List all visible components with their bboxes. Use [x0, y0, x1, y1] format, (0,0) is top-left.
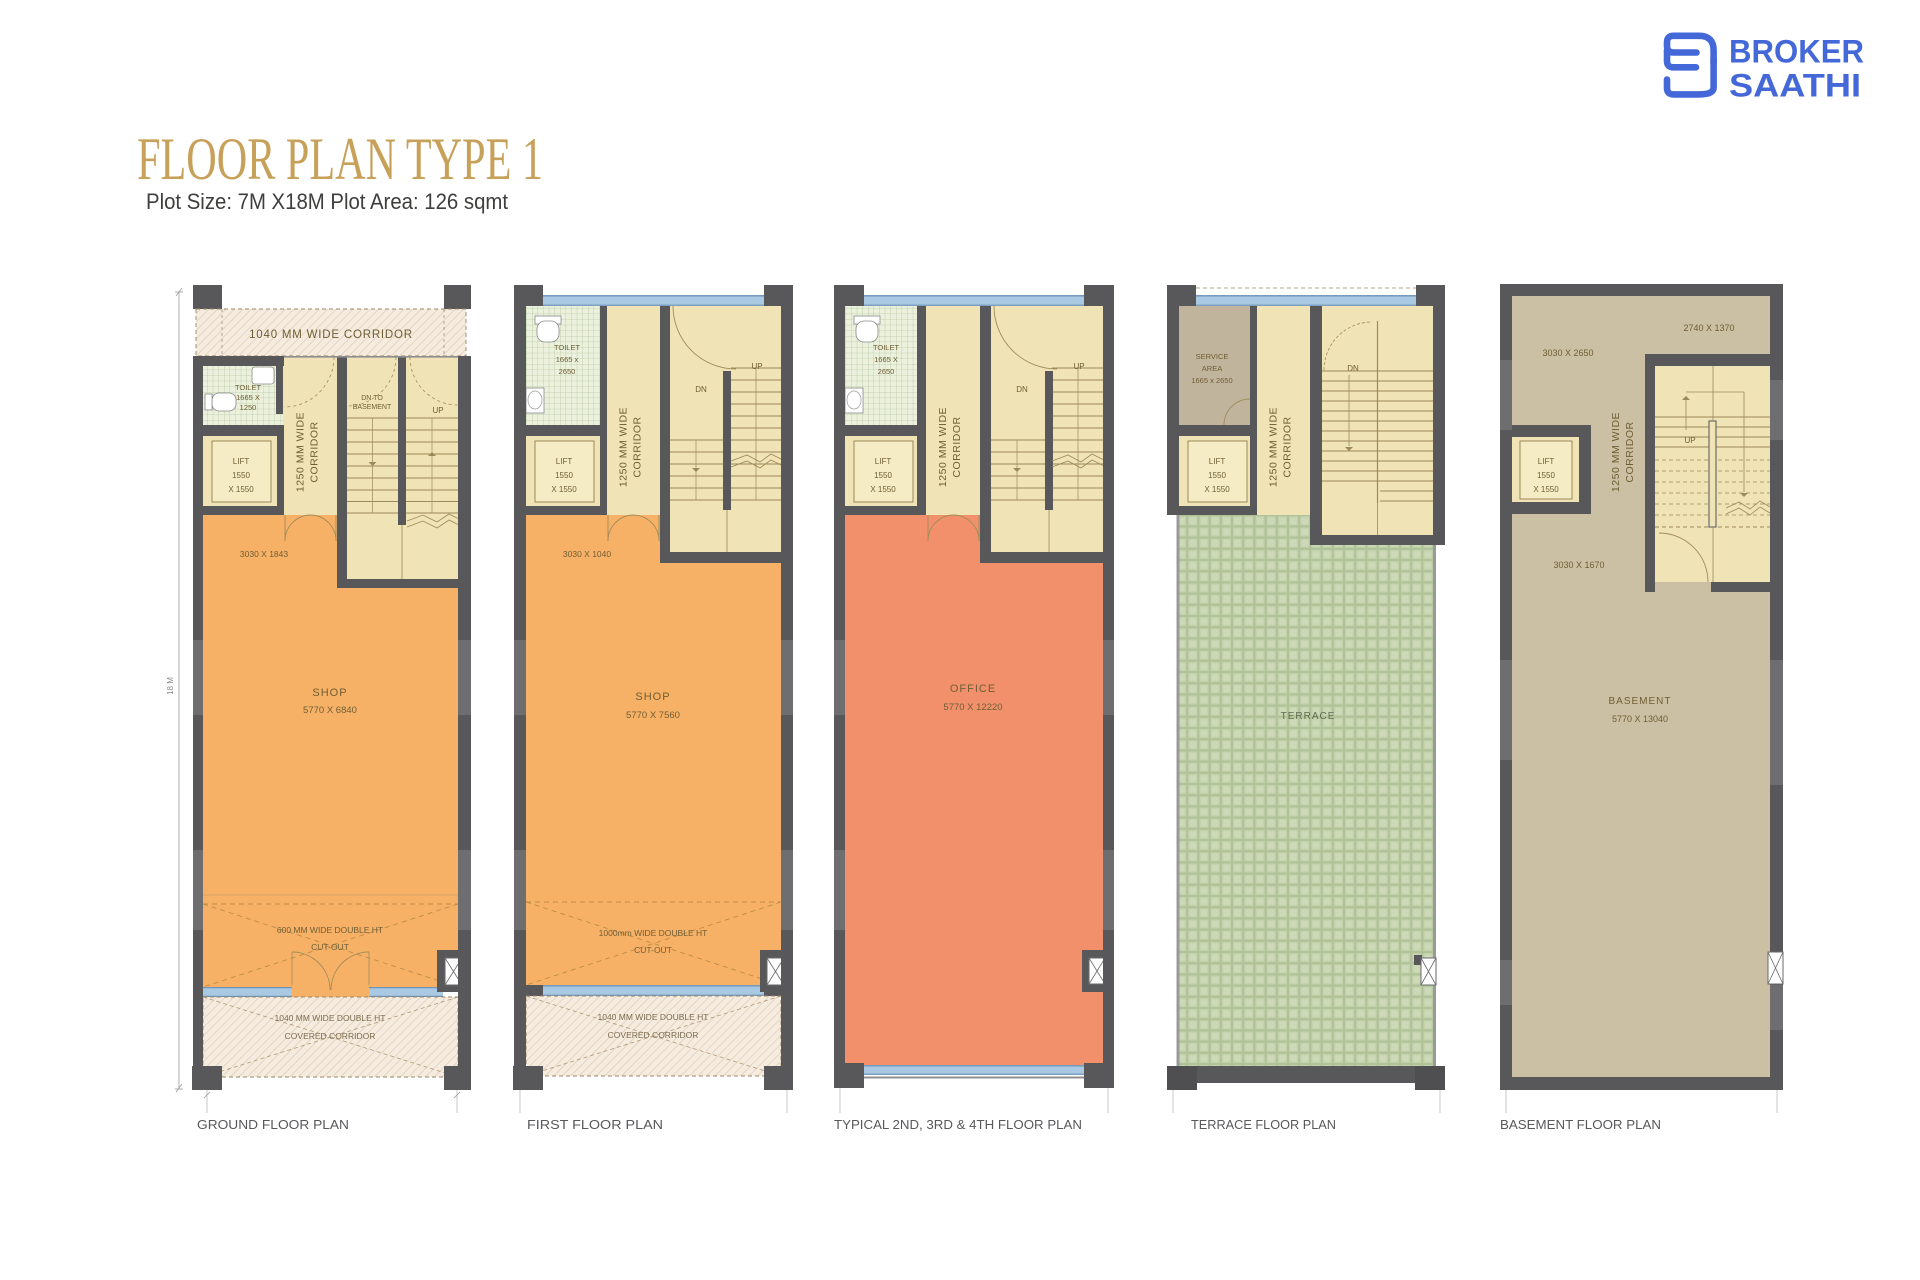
svg-text:SHOP: SHOP	[635, 691, 670, 703]
svg-text:600 MM WIDE DOUBLE HT: 600 MM WIDE DOUBLE HT	[277, 925, 383, 935]
svg-text:FIRST FLOOR PLAN: FIRST FLOOR PLAN	[527, 1117, 663, 1132]
svg-text:CORRIDOR: CORRIDOR	[1282, 416, 1294, 477]
svg-text:LIFT: LIFT	[1209, 457, 1226, 466]
svg-text:X 1550: X 1550	[870, 485, 896, 494]
svg-text:LIFT: LIFT	[556, 457, 573, 466]
svg-text:GROUND FLOOR PLAN: GROUND FLOOR PLAN	[197, 1117, 349, 1132]
svg-text:1250 MM WIDE: 1250 MM WIDE	[1610, 412, 1622, 492]
svg-text:SAATHI: SAATHI	[1729, 68, 1861, 104]
svg-text:1000mm WIDE DOUBLE HT: 1000mm WIDE DOUBLE HT	[599, 928, 708, 938]
svg-text:OFFICE: OFFICE	[950, 683, 996, 695]
svg-text:1250 MM WIDE: 1250 MM WIDE	[618, 407, 630, 487]
svg-text:CORRIDOR: CORRIDOR	[632, 416, 644, 477]
svg-text:LIFT: LIFT	[875, 457, 892, 466]
svg-text:1250 MM WIDE: 1250 MM WIDE	[937, 407, 949, 487]
svg-text:1550: 1550	[1208, 471, 1226, 480]
svg-text:CORRIDOR: CORRIDOR	[951, 416, 963, 477]
svg-text:5770 X 7560: 5770 X 7560	[626, 710, 680, 721]
svg-text:SHOP: SHOP	[312, 687, 347, 699]
svg-text:3030 X 1040: 3030 X 1040	[563, 549, 611, 559]
svg-text:1040 MM WIDE DOUBLE HT: 1040 MM WIDE DOUBLE HT	[598, 1012, 709, 1022]
svg-text:TERRACE FLOOR PLAN: TERRACE FLOOR PLAN	[1191, 1117, 1336, 1132]
svg-text:1250: 1250	[240, 403, 257, 412]
svg-text:1550: 1550	[1537, 471, 1555, 480]
svg-text:DN: DN	[695, 385, 707, 394]
svg-text:TERRACE: TERRACE	[1281, 711, 1336, 722]
svg-text:X 1550: X 1550	[1533, 485, 1559, 494]
svg-text:BASEMENT FLOOR PLAN: BASEMENT FLOOR PLAN	[1500, 1117, 1661, 1132]
svg-text:5770 X 13040: 5770 X 13040	[1612, 714, 1668, 724]
svg-text:1550: 1550	[555, 471, 573, 480]
svg-text:COVERED CORRIDOR: COVERED CORRIDOR	[608, 1030, 699, 1040]
svg-text:LIFT: LIFT	[233, 457, 250, 466]
svg-text:DN TO: DN TO	[361, 395, 383, 402]
svg-text:2740 X 1370: 2740 X 1370	[1683, 323, 1734, 333]
svg-text:UP: UP	[751, 362, 762, 371]
svg-text:COVERED CORRIDOR: COVERED CORRIDOR	[285, 1031, 376, 1041]
svg-text:1550: 1550	[232, 471, 250, 480]
svg-text:TOILET: TOILET	[873, 343, 900, 352]
svg-text:CORRIDOR: CORRIDOR	[1624, 421, 1636, 482]
svg-text:CUT-OUT: CUT-OUT	[634, 945, 672, 955]
svg-text:UP: UP	[432, 406, 443, 415]
svg-text:FLOOR PLAN TYPE 1: FLOOR PLAN TYPE 1	[137, 126, 543, 192]
svg-text:1665 X: 1665 X	[236, 393, 260, 402]
svg-text:CORRIDOR: CORRIDOR	[309, 421, 321, 482]
svg-text:X 1550: X 1550	[228, 485, 254, 494]
svg-text:TOILET: TOILET	[235, 383, 262, 392]
svg-text:3030 X 1843: 3030 X 1843	[240, 549, 288, 559]
svg-text:18 M: 18 M	[166, 677, 175, 695]
svg-text:Plot Size: 7M X18M Plot Area:: Plot Size: 7M X18M Plot Area: 126 sqmt	[146, 189, 508, 214]
svg-text:LIFT: LIFT	[1538, 457, 1555, 466]
svg-text:3030 X 2650: 3030 X 2650	[1542, 348, 1593, 358]
svg-text:BASEMENT: BASEMENT	[1608, 696, 1671, 707]
svg-text:3030 X 1670: 3030 X 1670	[1553, 560, 1604, 570]
svg-text:1040 MM WIDE DOUBLE HT: 1040 MM WIDE DOUBLE HT	[275, 1013, 386, 1023]
svg-text:SERVICE: SERVICE	[1196, 352, 1229, 361]
svg-text:5770 X 12220: 5770 X 12220	[943, 702, 1002, 713]
svg-text:1250 MM WIDE: 1250 MM WIDE	[1268, 407, 1280, 487]
svg-text:TYPICAL 2ND, 3RD & 4TH FLOOR P: TYPICAL 2ND, 3RD & 4TH FLOOR PLAN	[834, 1117, 1082, 1132]
svg-text:DN: DN	[1016, 385, 1028, 394]
svg-text:2650: 2650	[559, 367, 576, 376]
svg-text:1550: 1550	[874, 471, 892, 480]
svg-text:X 1550: X 1550	[1204, 485, 1230, 494]
svg-text:AREA: AREA	[1202, 364, 1222, 373]
svg-text:UP: UP	[1684, 436, 1695, 445]
svg-text:1665 x: 1665 x	[556, 355, 579, 364]
svg-text:1250 MM WIDE: 1250 MM WIDE	[295, 412, 307, 492]
svg-text:2650: 2650	[878, 367, 895, 376]
svg-text:TOILET: TOILET	[554, 343, 581, 352]
svg-text:UP: UP	[1073, 362, 1084, 371]
svg-text:1665 x 2650: 1665 x 2650	[1191, 376, 1232, 385]
svg-text:BROKER: BROKER	[1729, 34, 1864, 70]
svg-text:CUT-OUT: CUT-OUT	[311, 942, 349, 952]
svg-text:5770 X 6840: 5770 X 6840	[303, 705, 357, 716]
svg-text:X 1550: X 1550	[551, 485, 577, 494]
svg-text:DN: DN	[1347, 364, 1359, 373]
svg-text:1040 MM WIDE CORRIDOR: 1040 MM WIDE CORRIDOR	[249, 329, 413, 341]
svg-text:BASEMENT: BASEMENT	[353, 404, 392, 411]
svg-text:1665 X: 1665 X	[874, 355, 898, 364]
